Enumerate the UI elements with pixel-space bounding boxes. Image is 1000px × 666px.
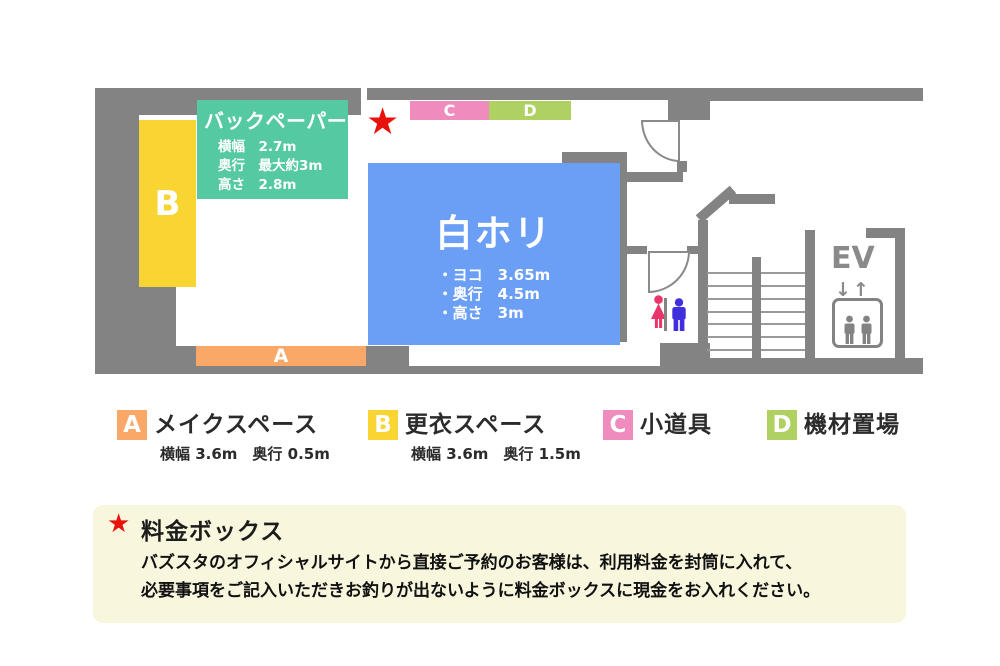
cyclorama-title: 白ホリ (436, 203, 553, 257)
backpaper-box: バックペーパー 横幅 2.7m 奥行 最大約3m 高さ 2.8m (197, 100, 348, 199)
elevator-label: EV (831, 241, 875, 276)
legend-a-square: A (117, 410, 147, 440)
backpaper-spec-depth: 奥行 最大約3m (218, 157, 348, 176)
door-arc-toilet (648, 251, 690, 293)
legend-b-label: 更衣スペース (405, 410, 581, 440)
legend-item-a: A メイクスペース 横幅 3.6m 奥行 0.5m (117, 410, 330, 464)
cyclorama-box: 白ホリ ・ヨコ 3.65m ・奥行 4.5m ・高さ 3m (368, 163, 620, 345)
legend-item-c: C 小道具 (603, 410, 712, 440)
wall-ev-corner-v (895, 238, 905, 358)
area-b-block: B (139, 120, 196, 287)
wall-toilet-mid-l (625, 246, 647, 254)
legend-d-label: 機材置場 (804, 410, 900, 440)
door-arc-entrance (641, 120, 680, 162)
legend-b-square: B (368, 410, 398, 440)
wall-left-ext (139, 287, 176, 347)
wall-bottom-mid (409, 366, 662, 374)
legend-c-label: 小道具 (640, 410, 712, 440)
wall-ev-corner-h (866, 228, 905, 238)
area-d-letter: D (523, 101, 536, 120)
cyclorama-spec-depth: ・奥行 4.5m (438, 285, 551, 304)
legend-d-square: D (767, 410, 797, 440)
wall-toilet-bottom (660, 343, 710, 374)
elevator-people-icon (841, 315, 875, 345)
wall-top-mid (367, 88, 668, 100)
legend-a-sub: 横幅 3.6m 奥行 0.5m (160, 443, 330, 464)
infobox-title: 料金ボックス (141, 512, 284, 546)
wall-toilet-top (625, 172, 683, 182)
backpaper-spec-height: 高さ 2.8m (218, 176, 348, 195)
payment-star-icon: ★ (366, 100, 399, 143)
backpaper-spec-width: 横幅 2.7m (218, 138, 348, 157)
toilet-divider (664, 298, 667, 331)
studio-floor-plan-page: { "colors": { "wall": "#838383", "step":… (0, 0, 1000, 666)
infobox-line-1: バズスタのオフィシャルサイトから直接ご予約のお客様は、利用料金を封筒に入れて、 (141, 549, 802, 577)
stair-center-rail (752, 257, 761, 358)
area-c-block: C (410, 101, 489, 120)
wall-left (95, 88, 139, 347)
wall-stair-right (805, 230, 815, 358)
wall-diagonal (696, 186, 737, 223)
man-icon (669, 298, 689, 333)
legend-c-square: C (603, 410, 633, 440)
wall-top-right (710, 88, 923, 101)
area-c-letter: C (444, 101, 456, 120)
legend-item-d: D 機材置場 (767, 410, 900, 440)
area-a-strip: A (196, 346, 366, 366)
elevator-cab-icon (832, 298, 883, 348)
backpaper-title: バックペーパー (197, 100, 348, 134)
wall-bottom-right (708, 358, 923, 374)
wall-door-jamb (677, 161, 687, 172)
cyclorama-spec-width: ・ヨコ 3.65m (438, 266, 551, 285)
wall-top-block (668, 88, 710, 120)
area-b-letter: B (155, 184, 181, 224)
legend-a-label: メイクスペース (154, 410, 330, 440)
cyclorama-spec-height: ・高さ 3m (438, 304, 551, 323)
wall-stub-cyc-top (562, 152, 627, 163)
area-a-letter: A (274, 345, 289, 367)
wall-stair-left (698, 220, 708, 346)
legend-item-b: B 更衣スペース 横幅 3.6m 奥行 1.5m (368, 410, 581, 464)
area-d-block: D (489, 101, 571, 120)
wall-after-diag (729, 194, 775, 204)
infobox-star-icon: ★ (107, 509, 130, 539)
infobox-line-2: 必要事項をご記入いただきお釣りが出ないように料金ボックスに現金をお入れください。 (141, 577, 820, 605)
legend-b-sub: 横幅 3.6m 奥行 1.5m (411, 443, 581, 464)
payment-info-box: ★ 料金ボックス バズスタのオフィシャルサイトから直接ご予約のお客様は、利用料金… (93, 505, 906, 623)
